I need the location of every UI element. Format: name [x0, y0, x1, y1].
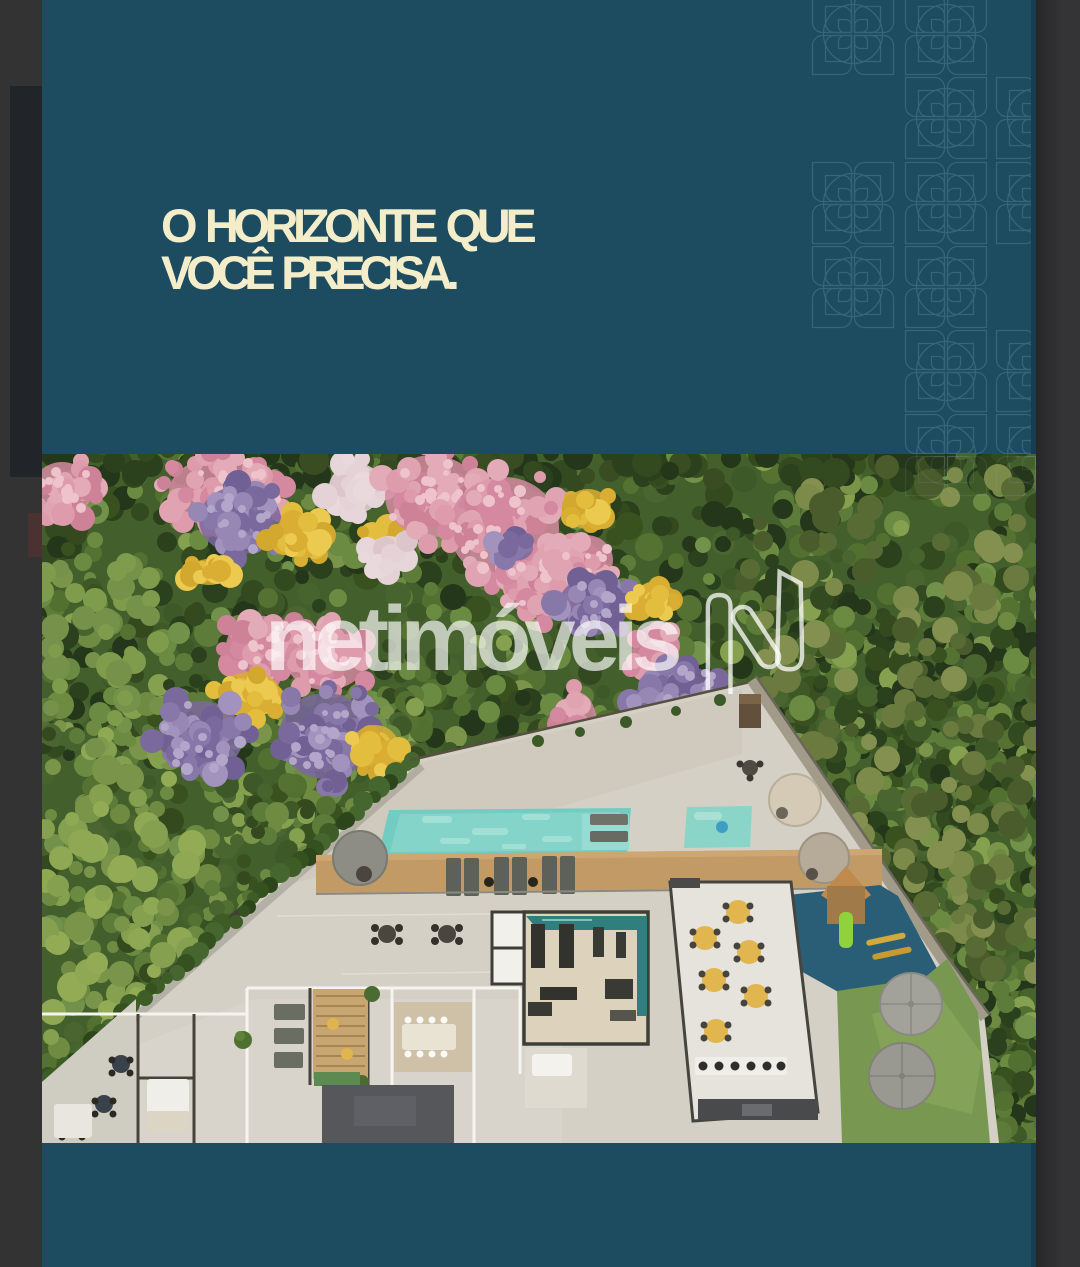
svg-text:netimóveis: netimóveis: [265, 588, 679, 690]
